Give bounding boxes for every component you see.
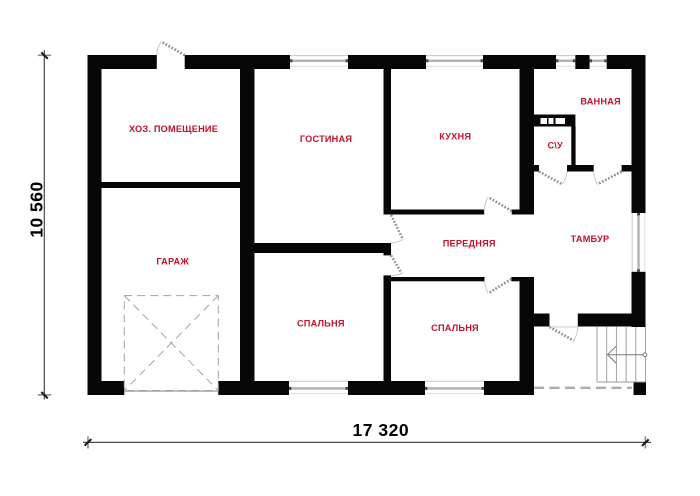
svg-text:СПАЛЬНЯ: СПАЛЬНЯ — [431, 323, 479, 333]
svg-text:ПЕРЕДНЯЯ: ПЕРЕДНЯЯ — [443, 239, 496, 249]
svg-text:ГАРАЖ: ГАРАЖ — [156, 256, 189, 266]
svg-text:17 320: 17 320 — [353, 420, 410, 440]
svg-text:ВАННАЯ: ВАННАЯ — [580, 97, 621, 107]
svg-text:СПАЛЬНЯ: СПАЛЬНЯ — [297, 319, 345, 329]
svg-text:ХОЗ. ПОМЕЩЕНИЕ: ХОЗ. ПОМЕЩЕНИЕ — [129, 124, 218, 134]
svg-text:10 560: 10 560 — [27, 181, 47, 238]
svg-text:КУХНЯ: КУХНЯ — [439, 132, 471, 142]
svg-text:ТАМБУР: ТАМБУР — [571, 234, 610, 244]
svg-text:ГОСТИНАЯ: ГОСТИНАЯ — [300, 134, 352, 144]
svg-text:С\У: С\У — [547, 141, 563, 151]
